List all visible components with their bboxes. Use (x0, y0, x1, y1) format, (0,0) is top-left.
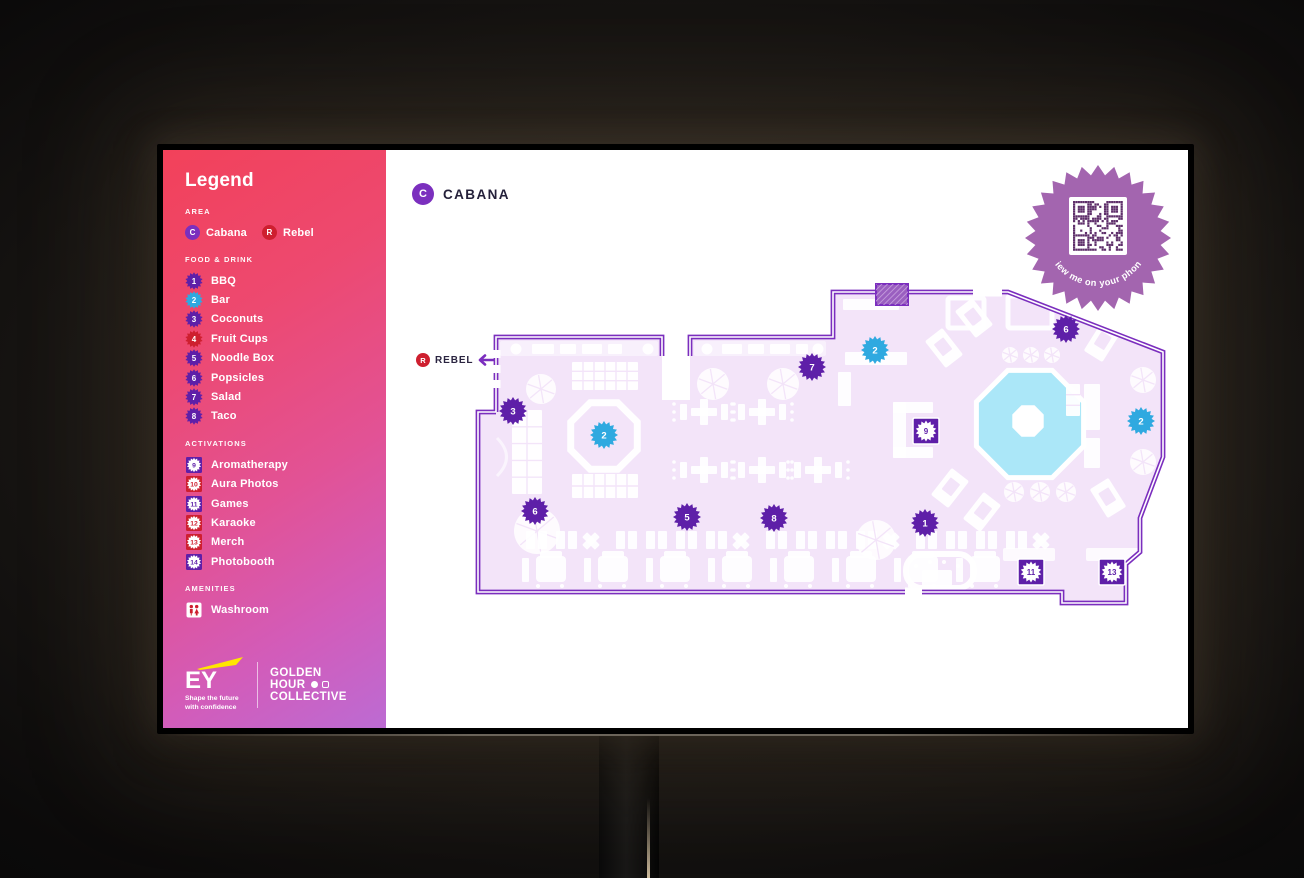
legend-marker-icon: 3 (185, 310, 203, 328)
svg-text:4: 4 (192, 335, 197, 344)
map-marker-6: 6 (521, 497, 549, 525)
svg-text:10: 10 (190, 482, 198, 489)
legend-item-label: Bar (211, 294, 230, 306)
map-marker-6: 6 (1052, 315, 1080, 343)
map-marker-1: 1 (911, 509, 939, 537)
legend-item-merch: 13Merch (185, 533, 374, 552)
cabana-area-badge: C (412, 183, 434, 205)
legend-section-heading: AMENITIES (185, 584, 374, 593)
legend-title: Legend (185, 170, 374, 192)
svg-text:2: 2 (872, 345, 877, 356)
legend-marker-icon: 10 (185, 475, 203, 493)
legend-marker-icon: 6 (185, 369, 203, 387)
svg-text:6: 6 (1063, 324, 1068, 335)
rebel-area-badge: R (416, 353, 430, 367)
svg-text:2: 2 (192, 296, 197, 305)
legend-marker-icon: 8 (185, 407, 203, 425)
legend-item-games: 11Games (185, 494, 374, 513)
legend-item-coconuts: 3Coconuts (185, 310, 374, 329)
qr-code-badge: View me on your phone (1023, 163, 1173, 313)
legend-item-label: Aura Photos (211, 478, 279, 490)
legend-section-heading: FOOD & DRINK (185, 255, 374, 264)
sponsor-footer: EY Shape the future with confidence GOLD… (185, 657, 376, 713)
map-marker-2: 2 (590, 421, 618, 449)
legend-sidebar: Legend AREACCabanaRRebelFOOD & DRINK1BBQ… (163, 150, 386, 728)
legend-marker-icon: 13 (185, 533, 203, 551)
legend-item-label: Karaoke (211, 517, 256, 529)
rebel-exit-label: R REBEL (416, 353, 495, 367)
svg-text:2: 2 (1138, 416, 1143, 427)
map-marker-9: 9 (913, 418, 939, 444)
washroom-icon (185, 601, 203, 619)
svg-text:11: 11 (1027, 568, 1036, 577)
legend-marker-icon: 2 (185, 291, 203, 309)
legend-item-karaoke: 12Karaoke (185, 513, 374, 532)
svg-text:7: 7 (809, 362, 814, 373)
legend-item-label: Popsicles (211, 372, 264, 384)
legend-area-row: CCabanaRRebel (185, 223, 374, 242)
legend-section-heading: AREA (185, 207, 374, 216)
legend-item-label: Photobooth (211, 556, 275, 568)
map-marker-11: 11 (1018, 559, 1044, 585)
legend-item-label: Noodle Box (211, 352, 274, 364)
display-screen: Legend AREACCabanaRRebelFOOD & DRINK1BBQ… (163, 150, 1188, 728)
legend-marker-icon: 7 (185, 388, 203, 406)
legend-item-label: Fruit Cups (211, 333, 268, 345)
ghc-square-icon (322, 681, 329, 688)
map-area-title: CABANA (443, 187, 510, 202)
legend-item-label: Aromatherapy (211, 459, 288, 471)
svg-text:1: 1 (192, 277, 197, 286)
legend-item-cabana: CCabana (185, 225, 247, 240)
svg-text:11: 11 (190, 501, 197, 508)
svg-text:5: 5 (192, 354, 197, 363)
svg-text:3: 3 (510, 406, 515, 417)
svg-text:13: 13 (190, 540, 198, 547)
legend-item-label: Merch (211, 536, 244, 548)
svg-text:8: 8 (192, 412, 197, 421)
svg-text:9: 9 (192, 462, 196, 469)
legend-item-taco: 8Taco (185, 407, 374, 426)
footer-divider (257, 662, 258, 708)
legend-item-bbq: 1BBQ (185, 271, 374, 290)
legend-section-activations: ACTIVATIONS9Aromatherapy10Aura Photos11G… (185, 439, 374, 571)
legend-item-salad: 7Salad (185, 387, 374, 406)
photo-scene: Legend AREACCabanaRRebelFOOD & DRINK1BBQ… (0, 0, 1304, 878)
svg-text:14: 14 (190, 559, 198, 566)
legend-item-photobooth: 14Photobooth (185, 552, 374, 571)
legend-marker-icon: 14 (185, 553, 203, 571)
legend-item-fruit-cups: 4Fruit Cups (185, 329, 374, 348)
display-frame: Legend AREACCabanaRRebelFOOD & DRINK1BBQ… (157, 144, 1194, 734)
legend-item-washroom: Washroom (185, 600, 374, 619)
svg-text:13: 13 (1108, 568, 1117, 577)
golden-hour-collective-logo: GOLDEN HOUR COLLECTIVE (270, 667, 347, 704)
ey-tagline: Shape the future with confidence (185, 695, 243, 713)
legend-item-label: Salad (211, 391, 241, 403)
legend-section-heading: ACTIVATIONS (185, 439, 374, 448)
map-area-header: C CABANA (412, 183, 510, 205)
legend-marker-icon: 11 (185, 495, 203, 513)
legend-item-popsicles: 6Popsicles (185, 368, 374, 387)
tv-stand-pole (599, 731, 659, 878)
svg-text:5: 5 (684, 512, 690, 523)
svg-text:8: 8 (771, 513, 776, 524)
legend-marker-icon: 1 (185, 272, 203, 290)
legend-item-bar: 2Bar (185, 290, 374, 309)
legend-section-food-drink: FOOD & DRINK1BBQ2Bar3Coconuts4Fruit Cups… (185, 255, 374, 426)
legend-item-label: BBQ (211, 275, 236, 287)
ey-logo: EY Shape the future with confidence (185, 657, 243, 713)
map-marker-2: 2 (861, 336, 889, 364)
legend-section-area: AREACCabanaRRebel (185, 207, 374, 242)
svg-text:12: 12 (190, 521, 198, 528)
legend-item-noodle-box: 5Noodle Box (185, 349, 374, 368)
map-marker-7: 7 (798, 353, 826, 381)
legend-item-label: Rebel (283, 227, 314, 239)
svg-text:2: 2 (601, 430, 606, 441)
legend-item-aromatherapy: 9Aromatherapy (185, 455, 374, 474)
map-marker-3: 3 (499, 397, 527, 425)
map-marker-2: 2 (1127, 407, 1155, 435)
area-badge-icon: R (262, 225, 277, 240)
legend-item-label: Washroom (211, 604, 269, 616)
legend-section-amenities: AMENITIESWashroom (185, 584, 374, 619)
legend-item-label: Coconuts (211, 313, 263, 325)
ghc-circle-icon (311, 681, 318, 688)
venue-map: 326587269211113 C CABANA R REBEL View me… (386, 150, 1188, 728)
legend-sections: AREACCabanaRRebelFOOD & DRINK1BBQ2Bar3Co… (185, 207, 374, 620)
legend-marker-icon: 4 (185, 330, 203, 348)
legend-item-rebel: RRebel (262, 225, 314, 240)
svg-text:7: 7 (192, 393, 197, 402)
qr-starburst: View me on your phone (1023, 163, 1173, 313)
map-marker-8: 8 (760, 504, 788, 532)
legend-item-label: Cabana (206, 227, 247, 239)
legend-item-label: Taco (211, 410, 237, 422)
svg-text:3: 3 (192, 315, 197, 324)
legend-marker-icon: 12 (185, 514, 203, 532)
svg-text:9: 9 (924, 427, 929, 436)
legend-marker-icon: 9 (185, 456, 203, 474)
svg-text:1: 1 (922, 518, 928, 529)
ey-wordmark: EY (185, 671, 243, 691)
legend-item-aura-photos: 10Aura Photos (185, 475, 374, 494)
legend-item-label: Games (211, 498, 249, 510)
map-marker-13: 13 (1099, 559, 1125, 585)
area-badge-icon: C (185, 225, 200, 240)
svg-text:6: 6 (192, 374, 197, 383)
map-marker-5: 5 (673, 503, 701, 531)
svg-text:6: 6 (532, 506, 537, 517)
legend-marker-icon: 5 (185, 349, 203, 367)
arrow-left-icon (478, 354, 495, 366)
